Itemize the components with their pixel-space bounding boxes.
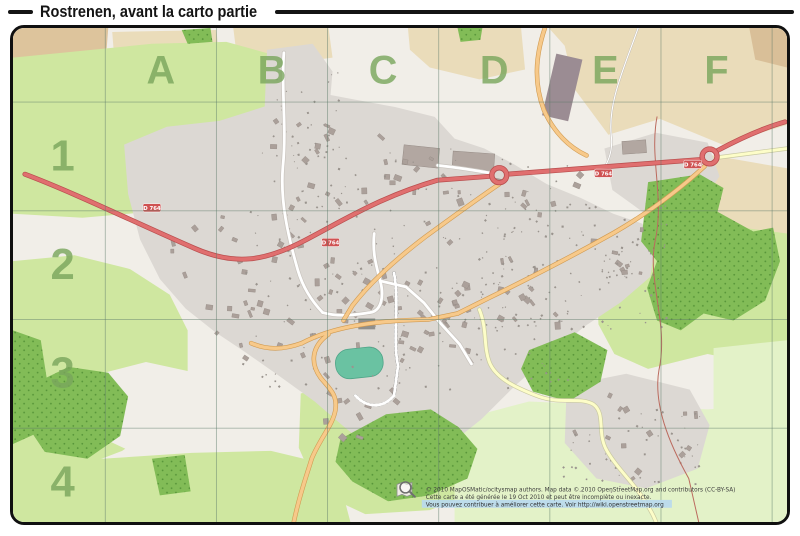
title-rule-left [8,10,33,13]
title-rule-right [275,10,794,13]
grid-column-label-D: D [480,48,509,92]
attribution-line3: Vous pouvez contribuer à améliorer cette… [426,501,664,508]
grid-column-label-E: E [592,48,618,92]
road-shield: D 764 [594,169,612,177]
grid-column-label-A: A [147,48,176,92]
attribution-line2: Cette carte a été générée le 19 Oct 2010… [426,494,652,501]
road-shield-text: D 764 [595,171,613,177]
grid-row-label-4: 4 [50,458,74,506]
map-frame: D 764D 764D 764D 764 ABCDEF1234 © 2010 M… [10,25,790,525]
road-shield: D 764 [322,238,340,246]
map-canvas: D 764D 764D 764D 764 ABCDEF1234 © 2010 M… [13,28,787,522]
page-title: Rostrenen, avant la carto partie [40,3,268,22]
attribution-line1: © 2010 MapOSMatic/ocitysmap authors. Map… [426,486,736,493]
grid-row-label-2: 2 [50,241,74,289]
road-shield-text: D 764 [322,240,340,246]
grid-row-label-1: 1 [50,132,74,180]
grid-column-label-F: F [704,48,728,92]
grid-column-label-B: B [258,48,287,92]
maposmatic-logo-icon [397,482,415,497]
road-shield: D 764 [684,160,702,168]
grid-row-label-3: 3 [50,350,74,398]
road-shield-text: D 764 [684,162,702,168]
title-bar: Rostrenen, avant la carto partie [8,2,794,22]
grid-column-label-C: C [369,48,398,92]
